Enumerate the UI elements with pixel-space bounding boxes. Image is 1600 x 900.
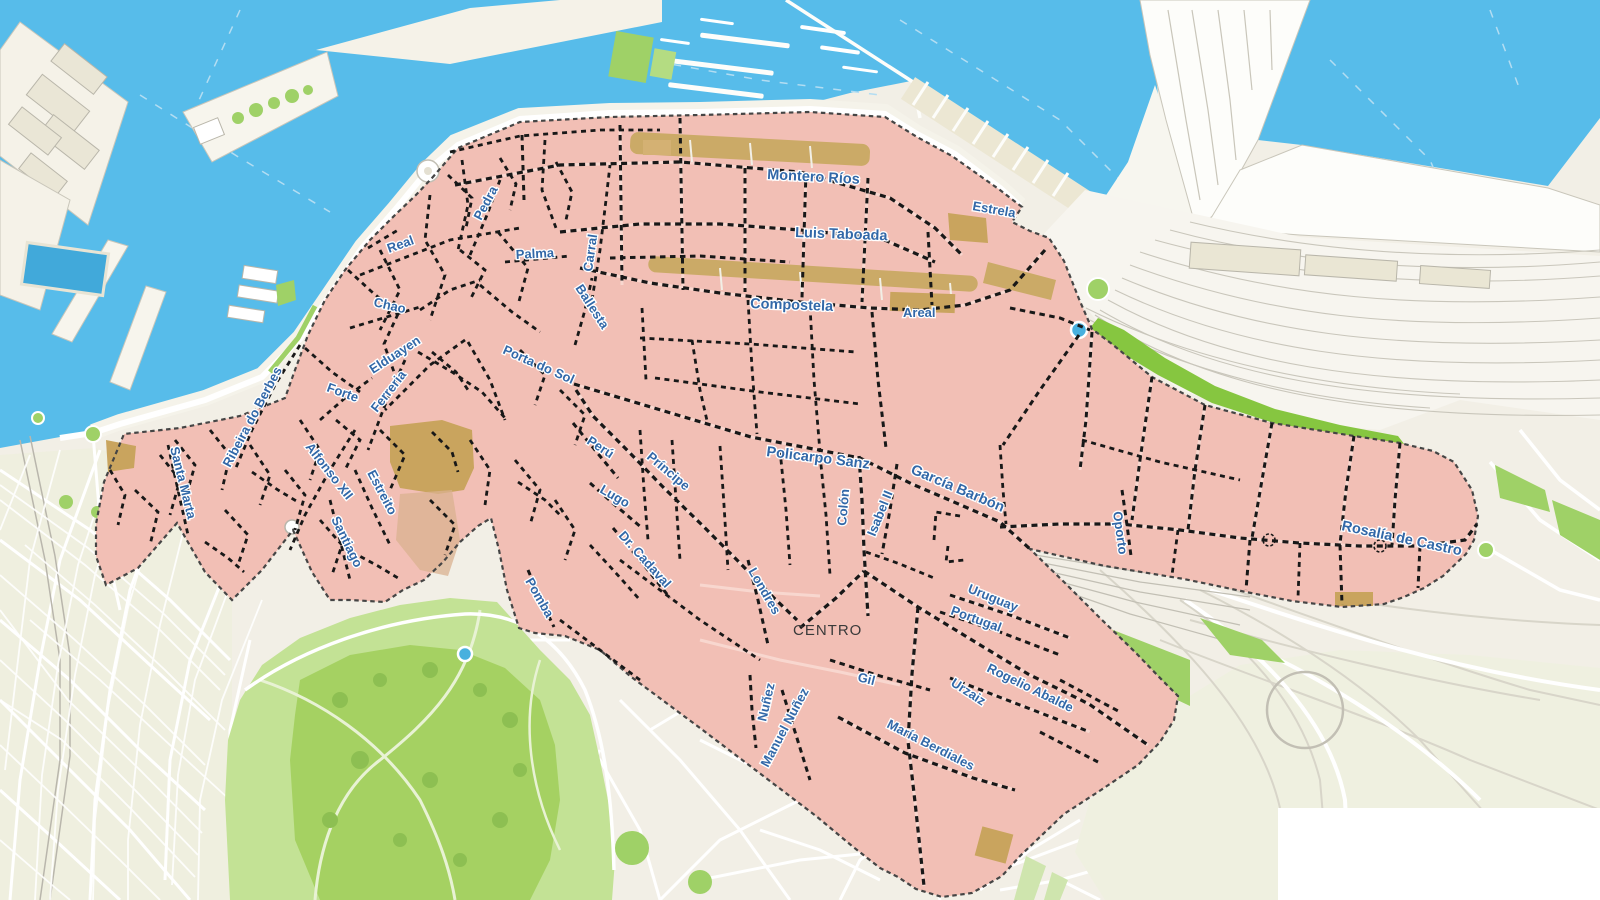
svg-text:Luis Taboada: Luis Taboada xyxy=(795,225,889,244)
svg-text:Colón: Colón xyxy=(834,488,852,526)
svg-text:Areal: Areal xyxy=(903,305,936,320)
svg-text:CENTRO: CENTRO xyxy=(793,622,862,639)
svg-text:Palma: Palma xyxy=(515,245,555,262)
svg-text:Compostela: Compostela xyxy=(750,296,834,315)
